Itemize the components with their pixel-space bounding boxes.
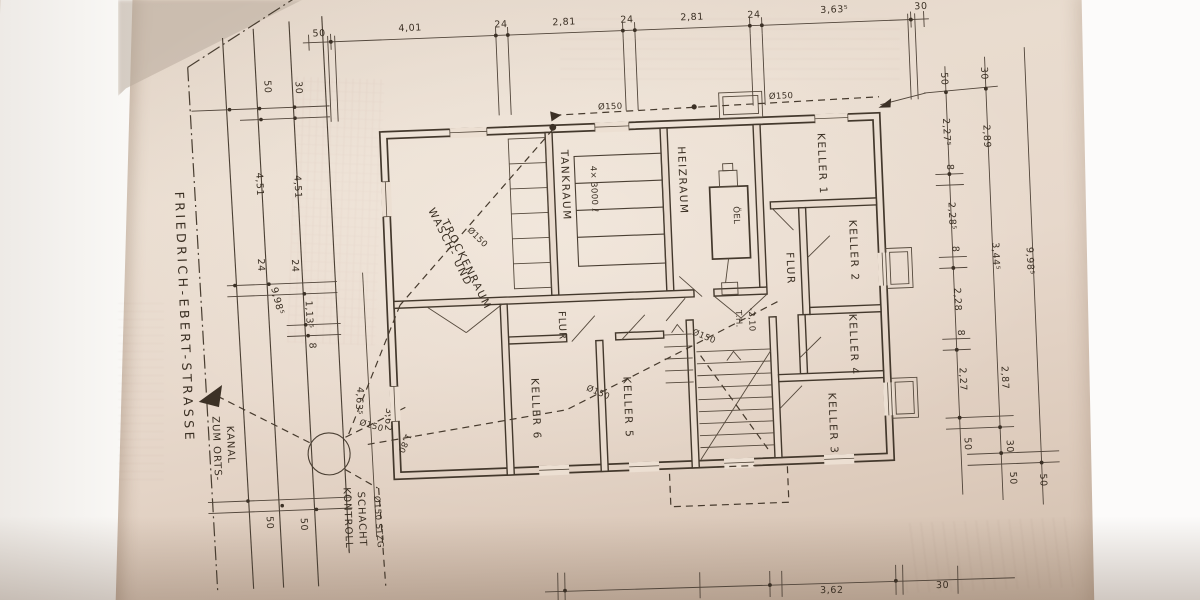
svg-text:KELLER 6: KELLER 6 bbox=[528, 378, 543, 440]
exterior-stair-dashed bbox=[669, 464, 789, 506]
sewer-run: ZUM ORTS- KANAL KONTROLL- SCHACHT Ø150 S… bbox=[198, 378, 414, 593]
svg-text:Ø150: Ø150 bbox=[465, 225, 490, 250]
oil-furnace: ÖEL bbox=[709, 163, 752, 295]
floor-plan-drawing: FRIEDRICH-EBERT-STRASSE 50 bbox=[0, 0, 1200, 600]
svg-text:30: 30 bbox=[978, 67, 990, 81]
svg-text:2,28⁵: 2,28⁵ bbox=[946, 202, 958, 230]
svg-text:ZUM ORTS-: ZUM ORTS- bbox=[209, 416, 223, 481]
svg-text:9,98⁵: 9,98⁵ bbox=[1024, 247, 1036, 275]
svg-text:ÖEL: ÖEL bbox=[730, 206, 742, 224]
svg-text:4,51: 4,51 bbox=[291, 175, 303, 199]
street-name-label: FRIEDRICH-EBERT-STRASSE bbox=[172, 191, 198, 443]
svg-text:2,27: 2,27 bbox=[957, 367, 969, 391]
interior-walls bbox=[387, 120, 887, 479]
svg-text:-2,10: -2,10 bbox=[746, 308, 757, 332]
svg-text:30: 30 bbox=[292, 81, 304, 95]
svg-text:50: 50 bbox=[298, 518, 310, 532]
right-dimension-chains: 50 2,27⁵ 8 2,28⁵ 8 2,28 8 2,27 50 30 2,8… bbox=[876, 47, 1061, 511]
svg-text:50: 50 bbox=[312, 28, 326, 39]
main-staircase bbox=[696, 349, 775, 460]
bottom-dimension-chain: 3,62 30 bbox=[545, 563, 1015, 600]
svg-text:T.H.: T.H. bbox=[733, 309, 744, 328]
svg-text:1,80: 1,80 bbox=[395, 432, 412, 455]
svg-text:4,51: 4,51 bbox=[253, 172, 265, 196]
svg-text:Ø150: Ø150 bbox=[769, 90, 794, 102]
svg-text:1,13⁵: 1,13⁵ bbox=[303, 300, 315, 328]
svg-text:2,27⁵: 2,27⁵ bbox=[940, 118, 952, 146]
svg-text:KANAL: KANAL bbox=[224, 426, 237, 464]
fuel-tanks: 4× 3000 ℓ bbox=[508, 133, 666, 289]
svg-text:KELLER 2: KELLER 2 bbox=[846, 220, 861, 282]
svg-text:2,89: 2,89 bbox=[980, 124, 992, 148]
svg-text:KELLER 5: KELLER 5 bbox=[620, 376, 635, 438]
svg-text:2,28: 2,28 bbox=[951, 288, 963, 312]
svg-text:24: 24 bbox=[747, 9, 761, 20]
room-labels: WASCH- UND TROCKENRAUM TANKRAUM HEIZRAUM… bbox=[423, 132, 868, 470]
svg-text:HEIZRAUM: HEIZRAUM bbox=[675, 146, 690, 215]
svg-text:8: 8 bbox=[306, 342, 317, 349]
svg-text:24: 24 bbox=[289, 259, 301, 273]
svg-text:TANKRAUM: TANKRAUM bbox=[558, 149, 573, 221]
svg-text:8: 8 bbox=[944, 164, 955, 171]
svg-text:2,87: 2,87 bbox=[999, 366, 1011, 390]
svg-text:50: 50 bbox=[264, 516, 276, 530]
svg-text:8: 8 bbox=[955, 329, 966, 336]
svg-text:2,81: 2,81 bbox=[552, 16, 576, 28]
svg-text:3,44⁵: 3,44⁵ bbox=[989, 242, 1001, 270]
svg-text:30: 30 bbox=[1004, 440, 1016, 454]
svg-text:Ø150: Ø150 bbox=[598, 101, 623, 113]
svg-text:2,81: 2,81 bbox=[680, 12, 704, 24]
svg-text:SCHACHT: SCHACHT bbox=[355, 491, 368, 546]
svg-text:FLUR: FLUR bbox=[783, 252, 796, 285]
left-dimension-chain: 50 30 4,51 4,51 24 24 1,13⁵ 8 9,98⁵ 4,63… bbox=[190, 75, 416, 535]
flow-arrow bbox=[198, 385, 223, 408]
svg-text:30: 30 bbox=[936, 580, 949, 591]
svg-text:4,63⁵: 4,63⁵ bbox=[353, 387, 366, 416]
svg-text:50: 50 bbox=[938, 72, 950, 86]
svg-text:FLUR: FLUR bbox=[556, 311, 568, 340]
svg-text:KELLER 1: KELLER 1 bbox=[814, 133, 829, 195]
svg-text:3,63⁵: 3,63⁵ bbox=[820, 4, 848, 16]
svg-text:3,62: 3,62 bbox=[820, 585, 844, 596]
svg-text:9,98⁵: 9,98⁵ bbox=[268, 286, 286, 316]
svg-text:KELLER 3: KELLER 3 bbox=[825, 392, 840, 454]
svg-text:24: 24 bbox=[494, 19, 508, 30]
photo-of-floor-plan: FRIEDRICH-EBERT-STRASSE 50 bbox=[0, 0, 1200, 600]
svg-text:50: 50 bbox=[1007, 471, 1019, 485]
svg-text:30: 30 bbox=[914, 1, 928, 12]
svg-text:50: 50 bbox=[261, 80, 273, 94]
svg-text:4,01: 4,01 bbox=[398, 22, 422, 34]
svg-text:4× 3000 ℓ: 4× 3000 ℓ bbox=[587, 166, 599, 213]
svg-text:50: 50 bbox=[961, 437, 973, 451]
svg-text:50: 50 bbox=[1037, 473, 1049, 487]
svg-text:24: 24 bbox=[620, 14, 634, 25]
svg-text:KONTROLL-: KONTROLL- bbox=[341, 487, 355, 553]
svg-text:24: 24 bbox=[255, 258, 267, 272]
svg-text:8: 8 bbox=[949, 246, 960, 253]
svg-text:Ø150 STZG: Ø150 STZG bbox=[371, 496, 386, 549]
svg-text:KELLER 4: KELLER 4 bbox=[846, 314, 861, 376]
